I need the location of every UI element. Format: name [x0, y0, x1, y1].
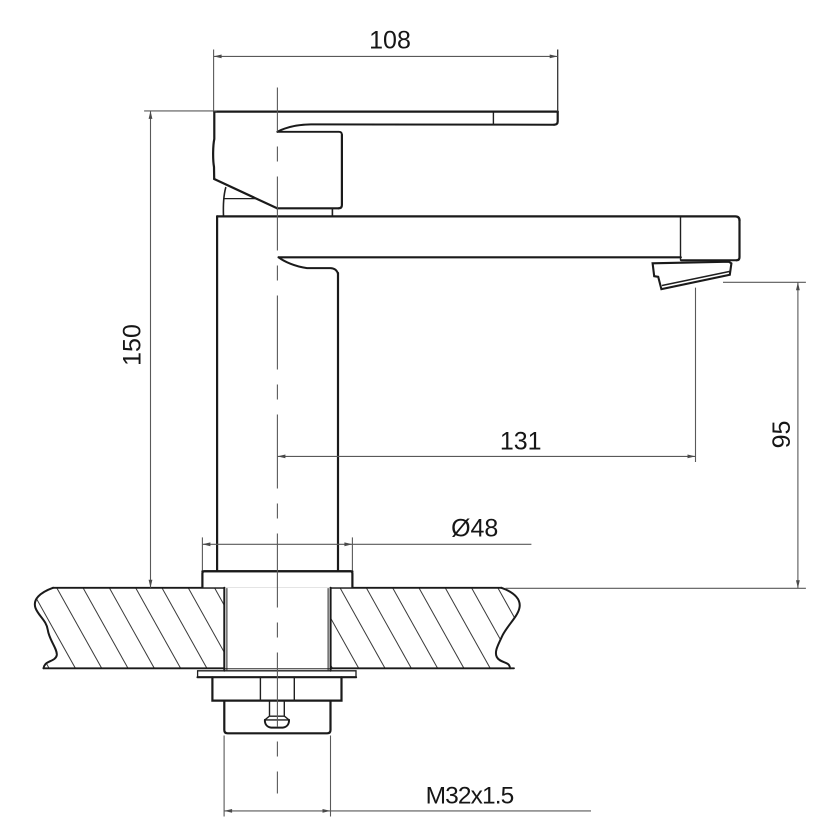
svg-text:108: 108 — [369, 27, 411, 55]
svg-text:150: 150 — [119, 324, 147, 366]
svg-text:131: 131 — [500, 428, 542, 456]
svg-text:Ø48: Ø48 — [451, 515, 498, 543]
svg-text:M32x1.5: M32x1.5 — [426, 783, 514, 810]
svg-text:95: 95 — [768, 421, 796, 449]
